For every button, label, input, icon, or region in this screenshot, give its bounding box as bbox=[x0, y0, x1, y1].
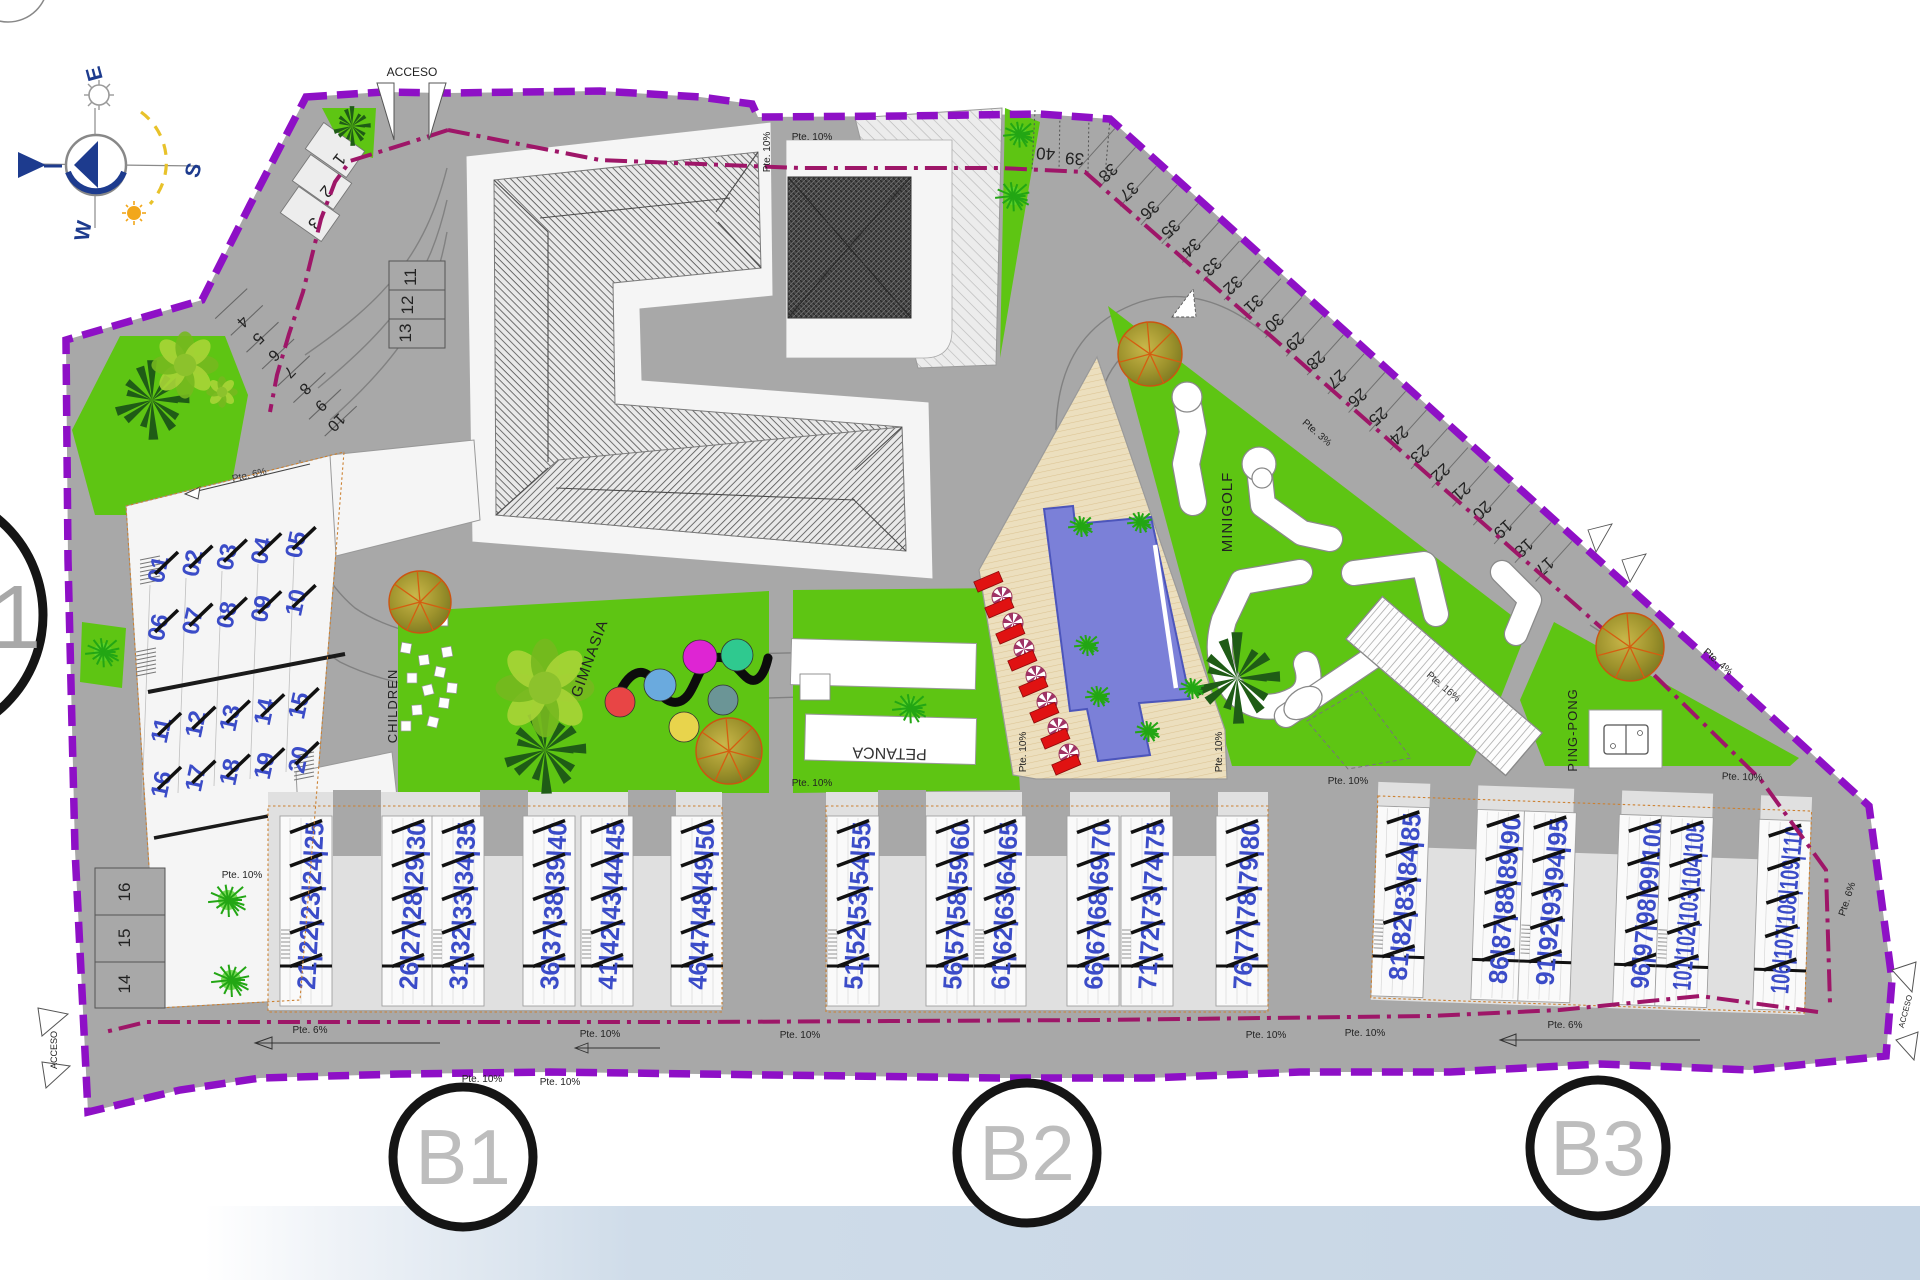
svg-text:Pte. 10%: Pte. 10% bbox=[792, 778, 833, 789]
svg-text:Pte. 10%: Pte. 10% bbox=[1214, 732, 1225, 773]
svg-text:14: 14 bbox=[115, 975, 134, 994]
svg-text:12: 12 bbox=[398, 296, 417, 315]
svg-text:B2: B2 bbox=[979, 1109, 1074, 1197]
svg-text:CHILDREN: CHILDREN bbox=[385, 669, 400, 743]
svg-text:Pte. 6%: Pte. 6% bbox=[1547, 1020, 1582, 1031]
svg-text:Pte. 10%: Pte. 10% bbox=[792, 132, 833, 143]
svg-text:Pte. 10%: Pte. 10% bbox=[1018, 732, 1029, 773]
svg-text:13: 13 bbox=[396, 324, 415, 343]
svg-text:Pte. 10%: Pte. 10% bbox=[762, 132, 773, 173]
svg-text:B1: B1 bbox=[415, 1113, 510, 1201]
svg-text:MINIGOLF: MINIGOLF bbox=[1219, 472, 1236, 553]
svg-text:ACCESO: ACCESO bbox=[49, 1031, 59, 1069]
svg-text:PETANCA: PETANCA bbox=[852, 743, 927, 762]
svg-text:B3: B3 bbox=[1550, 1104, 1645, 1192]
svg-text:Pte. 10%: Pte. 10% bbox=[540, 1077, 581, 1088]
svg-text:15: 15 bbox=[115, 929, 134, 948]
svg-text:Pte. 10%: Pte. 10% bbox=[1328, 776, 1369, 787]
svg-text:Pte. 10%: Pte. 10% bbox=[580, 1029, 621, 1040]
svg-text:Pte. 10%: Pte. 10% bbox=[1345, 1028, 1386, 1039]
svg-text:Pte. 6%: Pte. 6% bbox=[292, 1025, 327, 1036]
svg-text:39: 39 bbox=[1065, 148, 1085, 168]
svg-text:Pte. 10%: Pte. 10% bbox=[1722, 771, 1763, 783]
svg-text:11: 11 bbox=[401, 268, 420, 286]
svg-text:16: 16 bbox=[115, 883, 134, 902]
svg-text:Pte. 10%: Pte. 10% bbox=[780, 1030, 821, 1041]
svg-text:Pte. 10%: Pte. 10% bbox=[1246, 1030, 1287, 1041]
svg-text:40: 40 bbox=[1036, 143, 1056, 163]
svg-text:ACCESO: ACCESO bbox=[387, 65, 438, 79]
svg-text:1: 1 bbox=[0, 568, 41, 668]
svg-text:W: W bbox=[71, 219, 97, 243]
svg-text:Pte. 10%: Pte. 10% bbox=[222, 870, 263, 881]
svg-text:PING-PONG: PING-PONG bbox=[1565, 688, 1580, 771]
